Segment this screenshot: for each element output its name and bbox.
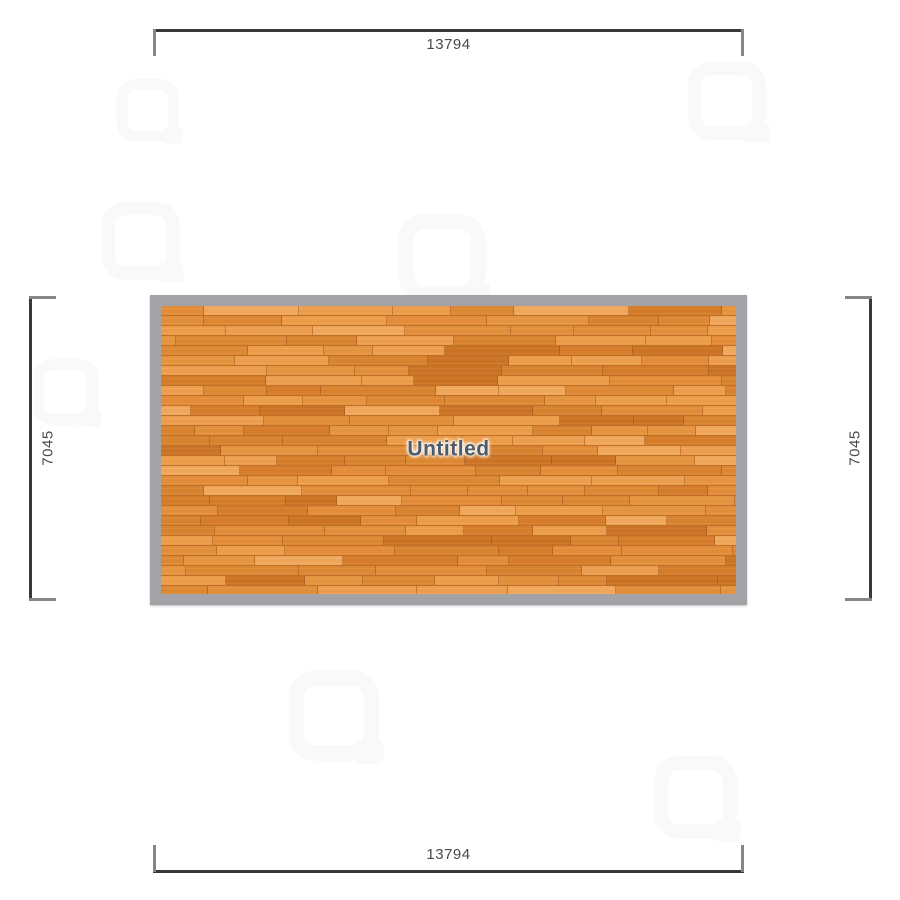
floorplanner-watermark-icon — [282, 666, 398, 782]
dimension-tick — [845, 598, 872, 601]
dimension-tick — [29, 296, 56, 299]
dimension-label-left: 7045 — [40, 430, 57, 465]
dimension-tick — [845, 296, 872, 299]
dimension-label-top: 13794 — [153, 36, 744, 53]
dimension-line — [153, 29, 744, 32]
room-label[interactable]: Untitled — [407, 438, 489, 462]
floorplanner-watermark-icon — [648, 752, 754, 858]
dimension-line — [29, 296, 32, 601]
room[interactable]: Untitled — [150, 295, 747, 605]
floorplanner-watermark-icon — [682, 58, 782, 158]
floorplanner-watermark-icon — [112, 76, 192, 156]
floorplan-canvas: 13794 13794 7045 7045 Untitled — [0, 0, 900, 900]
dimension-label-bottom: 13794 — [153, 846, 744, 863]
dimension-label-right: 7045 — [847, 430, 864, 465]
floorplanner-watermark-icon — [28, 356, 112, 440]
floorplanner-watermark-icon — [96, 198, 196, 298]
dimension-line — [869, 296, 872, 601]
dimension-tick — [29, 598, 56, 601]
dimension-line — [153, 870, 744, 873]
